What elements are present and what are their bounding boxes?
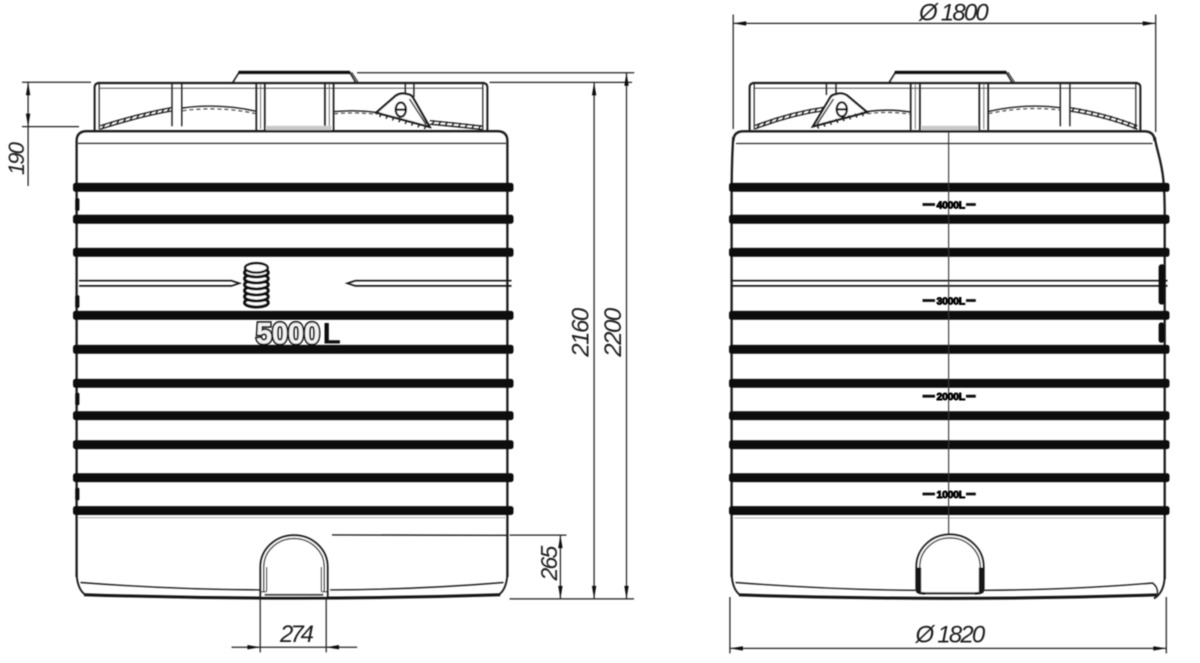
svg-text:5000: 5000 xyxy=(256,318,320,351)
svg-text:L: L xyxy=(323,318,341,351)
svg-text:2000L: 2000L xyxy=(937,391,966,403)
svg-text:190: 190 xyxy=(4,141,29,175)
svg-text:2200: 2200 xyxy=(600,307,627,358)
svg-text:274: 274 xyxy=(279,621,314,648)
svg-text:Ø 1820: Ø 1820 xyxy=(915,622,986,649)
svg-text:265: 265 xyxy=(536,546,562,582)
svg-text:4000L: 4000L xyxy=(937,199,966,211)
svg-text:2160: 2160 xyxy=(568,307,595,358)
svg-text:Ø 1800: Ø 1800 xyxy=(918,0,989,27)
svg-text:3000L: 3000L xyxy=(937,295,966,307)
svg-text:1000L: 1000L xyxy=(937,489,966,501)
